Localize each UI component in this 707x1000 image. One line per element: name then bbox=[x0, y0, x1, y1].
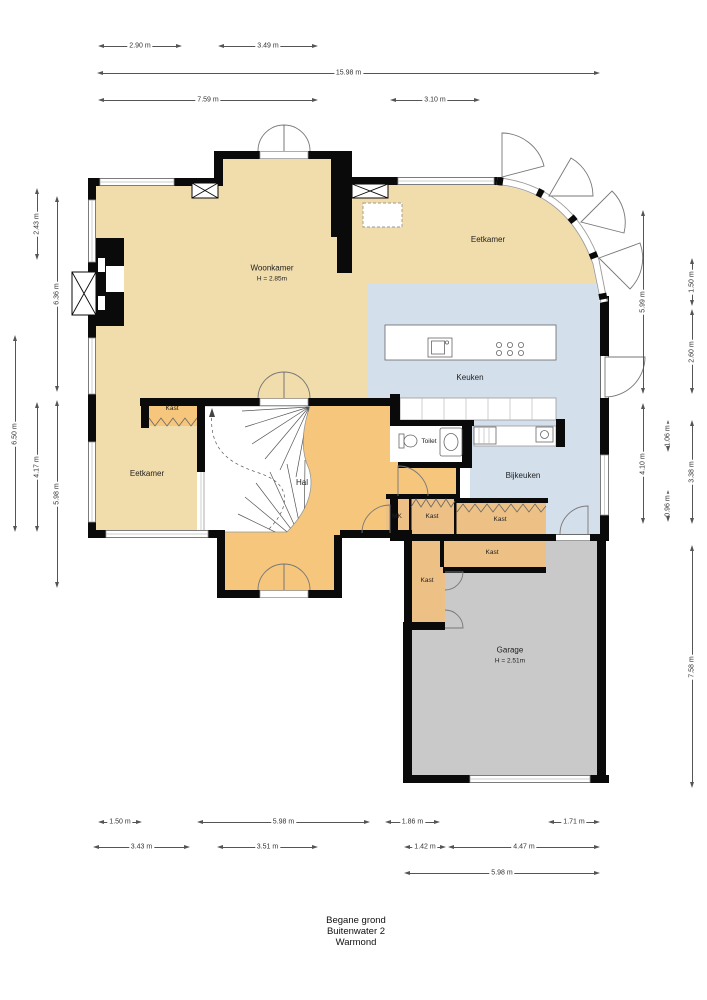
toilet-fixture bbox=[399, 434, 417, 448]
dimension-label: 15.98 m bbox=[334, 70, 363, 77]
door-opening bbox=[556, 535, 590, 541]
dimension-left-0: 2.43 m bbox=[33, 188, 42, 260]
door-arc bbox=[284, 125, 310, 151]
dimension-label: 4.10 m bbox=[640, 451, 647, 476]
door-sill bbox=[260, 399, 308, 406]
room-label-kast3: Kast bbox=[485, 548, 498, 559]
window-x-symbol bbox=[192, 183, 218, 198]
window bbox=[89, 200, 96, 262]
dimension-label: 3.38 m bbox=[689, 459, 696, 484]
window bbox=[398, 178, 494, 185]
garage-door bbox=[470, 776, 590, 783]
room-label-kast-top: Kast bbox=[165, 404, 178, 415]
dimension-top-4: 3.10 m bbox=[390, 96, 480, 105]
plan-title-floor: Begane grond bbox=[326, 915, 386, 926]
dimension-bottom-5: 3.51 m bbox=[217, 843, 318, 852]
dimension-bottom-1: 5.98 m bbox=[197, 818, 370, 827]
dimension-bottom-7: 4.47 m bbox=[448, 843, 600, 852]
dimension-bottom-4: 3.43 m bbox=[93, 843, 190, 852]
dimension-label: 2.90 m bbox=[127, 43, 152, 50]
dimension-label: 5.98 m bbox=[489, 870, 514, 877]
door-arc bbox=[599, 243, 643, 289]
dimension-label: 3.43 m bbox=[129, 844, 154, 851]
door-arc bbox=[502, 133, 544, 177]
door-sill bbox=[260, 152, 308, 159]
dimension-label: 5.98 m bbox=[54, 481, 61, 506]
window bbox=[601, 455, 609, 515]
dimension-label: 1.50 m bbox=[107, 819, 132, 826]
dimension-right-7: 7.58 m bbox=[688, 545, 697, 788]
dimension-bottom-6: 1.42 m bbox=[404, 843, 446, 852]
floor-plan: Woonkamer H = 2.85m Eetkamer Keuken Eetk… bbox=[0, 0, 707, 1000]
dimension-label: 1.06 m bbox=[665, 423, 672, 448]
dimension-label: 5.99 m bbox=[640, 289, 647, 314]
door-arc bbox=[581, 191, 625, 233]
dimension-left-2: 6.50 m bbox=[11, 335, 20, 532]
dimension-bottom-8: 5.98 m bbox=[404, 869, 600, 878]
dimension-label: 1.50 m bbox=[689, 269, 696, 294]
sink bbox=[428, 338, 452, 357]
window bbox=[106, 531, 208, 538]
dimension-left-3: 4.17 m bbox=[33, 402, 42, 532]
dimension-top-3: 7.59 m bbox=[98, 96, 318, 105]
plan-title-city: Warmond bbox=[326, 937, 386, 948]
dimension-label: 1.86 m bbox=[400, 819, 425, 826]
dimension-right-1: 4.10 m bbox=[639, 403, 648, 524]
dimension-bottom-2: 1.86 m bbox=[385, 818, 440, 827]
dimension-label: 2.43 m bbox=[34, 211, 41, 236]
door-arc bbox=[258, 125, 284, 151]
plan-title: Begane grond Buitenwater 2 Warmond bbox=[326, 915, 386, 948]
room-label-kast4: Kast bbox=[420, 576, 433, 587]
room-label-bijkeuken: Bijkeuken bbox=[506, 471, 541, 482]
room-label-eetkamer-left: Eetkamer bbox=[130, 469, 164, 480]
dimension-label: 6.36 m bbox=[54, 281, 61, 306]
dimension-right-3: 0.96 m bbox=[664, 490, 673, 522]
room-label-woonkamer: Woonkamer H = 2.85m bbox=[251, 264, 294, 285]
dimension-label: 1.71 m bbox=[561, 819, 586, 826]
window bbox=[89, 442, 96, 522]
room-label-hal: Hal bbox=[296, 478, 308, 489]
stairs-area bbox=[204, 406, 311, 532]
drying-rack bbox=[474, 427, 496, 444]
room-label-toilet: Toilet bbox=[421, 437, 436, 448]
window bbox=[100, 179, 174, 186]
kitchen-island bbox=[385, 325, 556, 360]
dimension-top-2: 15.98 m bbox=[97, 69, 600, 78]
dimension-right-2: 1.06 m bbox=[664, 420, 673, 452]
dimension-label: 3.49 m bbox=[255, 43, 280, 50]
dimension-label: 0.96 m bbox=[665, 493, 672, 518]
dimension-right-6: 3.38 m bbox=[688, 420, 697, 524]
dimension-label: 2.60 m bbox=[689, 339, 696, 364]
dimension-label: 5.98 m bbox=[271, 819, 296, 826]
room-label-mk: MK bbox=[392, 512, 402, 523]
dimension-label: 1.42 m bbox=[412, 844, 437, 851]
utility-sink bbox=[536, 427, 553, 442]
dimension-label: 7.59 m bbox=[195, 97, 220, 104]
dimension-label: 4.47 m bbox=[511, 844, 536, 851]
dimension-top-1: 3.49 m bbox=[218, 42, 318, 51]
dimension-label: 3.10 m bbox=[422, 97, 447, 104]
dimension-right-5: 2.60 m bbox=[688, 309, 697, 394]
kitchen-counter bbox=[400, 398, 556, 420]
room-label-garage: Garage H = 2.51m bbox=[495, 646, 525, 667]
washbasin bbox=[440, 428, 462, 456]
window bbox=[89, 338, 96, 394]
dimension-label: 3.51 m bbox=[255, 844, 280, 851]
dimension-label: 7.58 m bbox=[689, 654, 696, 679]
door-arc bbox=[549, 158, 593, 196]
dimension-left-1: 6.36 m bbox=[53, 196, 62, 392]
dimension-top-0: 2.90 m bbox=[98, 42, 182, 51]
dimension-label: 4.17 m bbox=[34, 454, 41, 479]
dimension-label: 6.50 m bbox=[12, 421, 19, 446]
door-sill bbox=[260, 591, 308, 598]
room-label-keuken: Keuken bbox=[456, 373, 483, 384]
room-label-eetkamer-top: Eetkamer bbox=[471, 235, 505, 246]
dimension-right-0: 5.99 m bbox=[639, 210, 648, 394]
window-x-symbol bbox=[352, 184, 388, 198]
dimension-bottom-3: 1.71 m bbox=[548, 818, 600, 827]
window-x-symbol bbox=[72, 272, 96, 315]
niche-dashed bbox=[363, 203, 402, 227]
room-label-kast1: Kast bbox=[425, 512, 438, 523]
room-label-kast2: Kast bbox=[493, 515, 506, 526]
plan-title-address: Buitenwater 2 bbox=[326, 926, 386, 937]
dimension-left-4: 5.98 m bbox=[53, 400, 62, 588]
dimension-right-4: 1.50 m bbox=[688, 258, 697, 306]
dimension-bottom-0: 1.50 m bbox=[98, 818, 142, 827]
